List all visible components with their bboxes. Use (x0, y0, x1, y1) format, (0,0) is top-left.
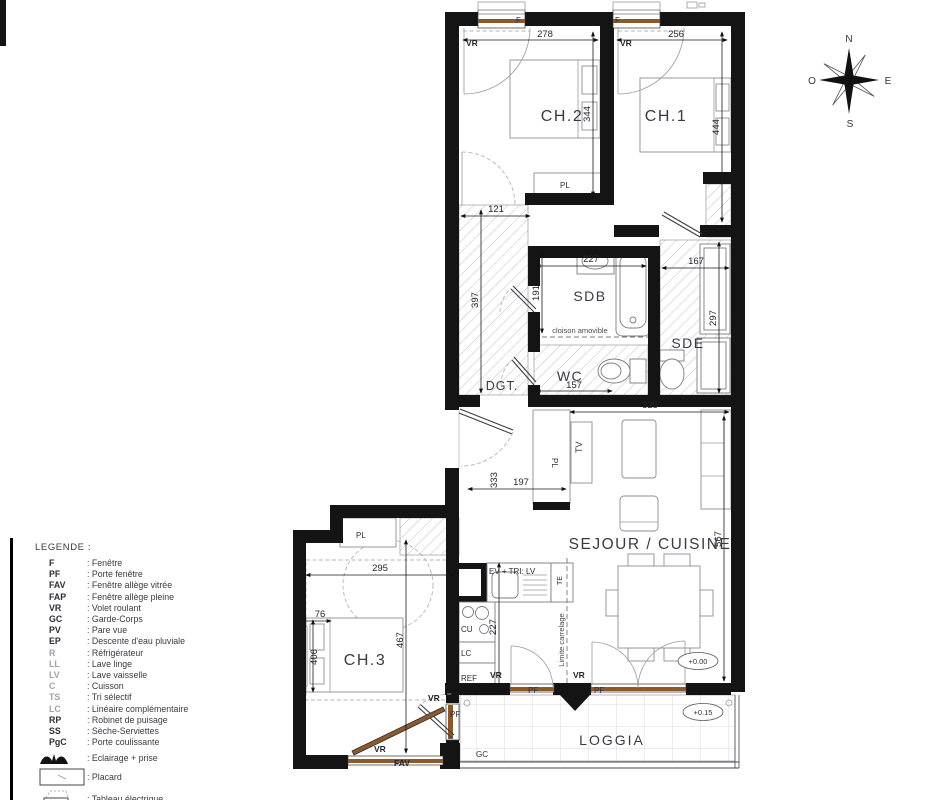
legend-code: LV (35, 670, 87, 681)
legend-label: : Garde-Corps (87, 614, 253, 625)
legend-code: EP (35, 636, 87, 647)
note-limite: Limite carrelage (557, 613, 566, 666)
legend-item: F: Fenêtre (35, 558, 253, 569)
dim: 567 (713, 531, 724, 547)
compass-e: E (885, 76, 892, 87)
compass-s: S (847, 119, 854, 130)
dim: 406 (309, 649, 320, 665)
dim: 256 (668, 29, 684, 40)
legend-code: FAV (35, 580, 87, 591)
dim: 227 (488, 619, 499, 635)
code-fav: FAV (394, 758, 410, 768)
code-vr: VR (466, 38, 478, 48)
dim: 197 (513, 477, 529, 488)
pillow (716, 84, 729, 111)
room-label-ch3: CH.3 (344, 652, 386, 669)
legend-title: LEGENDE : (35, 542, 253, 553)
code-pl: PL (550, 458, 559, 468)
code-pf: PF (594, 686, 604, 695)
chair (664, 554, 690, 567)
pillow (582, 66, 597, 94)
door-leaf (662, 215, 700, 237)
room-label-sdb: SDB (573, 288, 606, 304)
legend-item: GC: Garde-Corps (35, 614, 253, 625)
compass-o: O (808, 76, 816, 87)
dim: 344 (582, 106, 593, 122)
legend-label: : Lave linge (87, 659, 253, 670)
legend-item: LL: Lave linge (35, 659, 253, 670)
clipped-neighbor-wall (0, 0, 6, 46)
level-value: +0.15 (694, 708, 713, 717)
room-label-sde: SDE (671, 335, 704, 351)
room-label-ch2: CH.2 (541, 108, 583, 125)
legend-symbol-item: : Tableau électrique (35, 789, 253, 800)
legend-label: : Fenêtre allège pleine (87, 592, 253, 603)
code-pf: PF (528, 686, 538, 695)
room-label-sejour: SEJOUR / CUISINE (569, 536, 732, 553)
dim: 295 (372, 563, 388, 574)
ep-downpipe-icon (699, 3, 705, 7)
dim: 191 (531, 285, 542, 301)
legend-code: C (35, 681, 87, 692)
legend-code: PF (35, 569, 87, 580)
legend-label: : Fenêtre allège vitrée (87, 580, 253, 591)
compass-rose: N E S O (808, 34, 892, 130)
closet (340, 518, 396, 547)
legend: LEGENDE : F: Fenêtre PF: Porte fenêtre F… (10, 538, 253, 800)
ceiling-light-icon (39, 751, 69, 765)
dim: 467 (395, 632, 406, 648)
code-vr: VR (374, 744, 386, 754)
kitchen (450, 558, 573, 689)
legend-item: PgC: Porte coulissante (35, 737, 253, 748)
legend-label: : Volet roulant (87, 603, 253, 614)
legend-label: : Pare vue (87, 625, 253, 636)
closet (533, 410, 570, 504)
legend-label: : Tableau électrique (87, 794, 253, 800)
closet-icon (39, 768, 85, 786)
chair (700, 590, 713, 616)
legend-code: FAP (35, 592, 87, 603)
legend-label: : Lave vaisselle (87, 670, 253, 681)
legend-item: LC: Linéaire complémentaire (35, 704, 253, 715)
code-f: F (516, 16, 521, 25)
dim: 325 (642, 400, 658, 411)
armchair (620, 496, 658, 531)
legend-label: : Robinet de puisage (87, 715, 253, 726)
legend-code: GC (35, 614, 87, 625)
code-lc: LC (461, 649, 471, 658)
shutter-box (613, 2, 660, 10)
legend-label: : Porte coulissante (87, 737, 253, 748)
code-te: TE (557, 576, 564, 585)
sofa (701, 410, 731, 509)
legend-item: PV: Pare vue (35, 625, 253, 636)
level-value: +0.00 (689, 657, 708, 666)
legend-item: TS: Tri sélectif (35, 692, 253, 703)
chair (628, 554, 654, 567)
pillow (310, 624, 324, 650)
entry-door-leaf (460, 409, 513, 430)
legend-item: C: Cuisson (35, 681, 253, 692)
code-cu: CU (461, 625, 473, 634)
dim: 167 (688, 256, 704, 267)
toilet (660, 359, 684, 389)
chair (628, 648, 654, 661)
dim: 333 (489, 472, 500, 488)
code-ref: REF (461, 674, 477, 683)
legend-item: LV: Lave vaisselle (35, 670, 253, 681)
legend-label: : Placard (87, 772, 253, 782)
legend-code: R (35, 648, 87, 659)
legend-code: VR (35, 603, 87, 614)
legend-item: FAV: Fenêtre allège vitrée (35, 580, 253, 591)
ep-downpipe-icon (687, 2, 697, 8)
legend-code: SS (35, 726, 87, 737)
legend-item: PF: Porte fenêtre (35, 569, 253, 580)
legend-code: LL (35, 659, 87, 670)
legend-item: SS: Sèche-Serviettes (35, 726, 253, 737)
coffee-table (622, 420, 656, 478)
legend-item: R: Réfrigérateur (35, 648, 253, 659)
code-vr: VR (428, 693, 440, 703)
dim: 227 (583, 254, 599, 265)
code-vr: VR (620, 38, 632, 48)
legend-item: FAP: Fenêtre allège pleine (35, 592, 253, 603)
legend-label: : Fenêtre (87, 558, 253, 569)
dining-table (618, 566, 700, 648)
room-label-ch1: CH.1 (645, 108, 687, 125)
code-pl: PL (560, 181, 570, 190)
legend-item: EP: Descente d'eau pluviale (35, 636, 253, 647)
compass-star (819, 48, 879, 114)
code-vr: VR (490, 670, 502, 680)
toilet-tank (630, 359, 646, 383)
legend-label: : Descente d'eau pluviale (87, 636, 253, 647)
room-label-dgt: DGT. (486, 379, 518, 393)
code-f: F (615, 16, 620, 25)
legend-label: : Réfrigérateur (87, 648, 253, 659)
chair (606, 590, 619, 616)
legend-label: : Porte fenêtre (87, 569, 253, 580)
legend-code: LC (35, 704, 87, 715)
electrical-panel-icon (39, 789, 73, 800)
legend-label: : Eclairage + prise (87, 753, 253, 763)
floor-plan-page: CH.2 CH.1 CH.3 SDB SDE WC DGT. SEJOUR / … (0, 0, 931, 800)
legend-label: : Cuisson (87, 681, 253, 692)
dim: 278 (537, 29, 553, 40)
dim: 121 (488, 204, 504, 215)
legend-symbol-item: : Eclairage + prise (35, 751, 253, 765)
code-ev: EV + TRI: LV (489, 567, 536, 576)
legend-label: : Tri sélectif (87, 692, 253, 703)
legend-code: TS (35, 692, 87, 703)
code-vr: VR (573, 670, 585, 680)
note-cloison: cloison amovible (552, 326, 607, 335)
dim: 76 (315, 609, 326, 620)
legend-item: VR: Volet roulant (35, 603, 253, 614)
legend-symbol-item: : Placard (35, 768, 253, 786)
legend-code: PV (35, 625, 87, 636)
compass-n: N (845, 34, 852, 45)
code-pf: PF (450, 710, 460, 719)
code-tv: TV (574, 441, 584, 453)
room-label-loggia: LOGGIA (579, 732, 645, 748)
legend-code: PgC (35, 737, 87, 748)
legend-code: F (35, 558, 87, 569)
legend-label: : Linéaire complémentaire (87, 704, 253, 715)
legend-label: : Sèche-Serviettes (87, 726, 253, 737)
dim: 157 (566, 380, 582, 391)
code-pl: PL (356, 531, 366, 540)
legend-item: RP: Robinet de puisage (35, 715, 253, 726)
legend-code: RP (35, 715, 87, 726)
dim: 297 (708, 310, 719, 326)
dim: 397 (470, 292, 481, 308)
shutter-box (478, 2, 525, 10)
dim: 444 (711, 119, 722, 135)
code-gc: GC (476, 750, 488, 759)
window-leaf (352, 707, 445, 755)
